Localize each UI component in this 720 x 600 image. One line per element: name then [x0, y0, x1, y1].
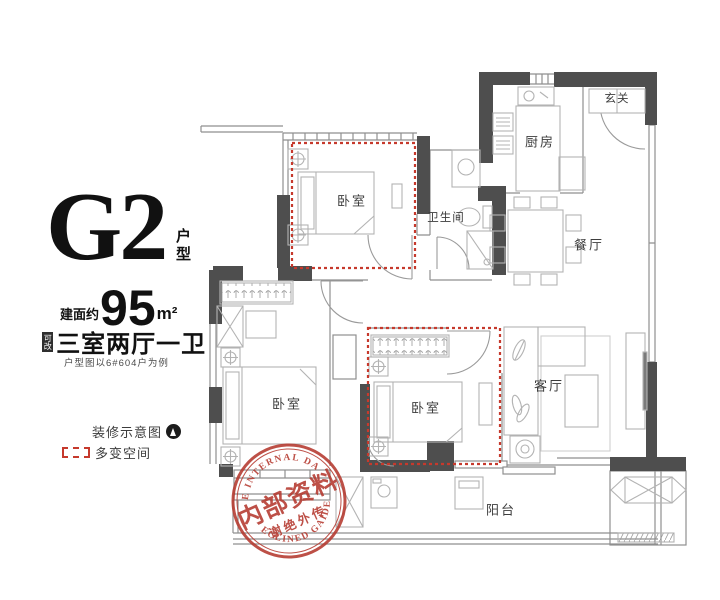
- room-label-entry: 玄关: [605, 90, 630, 106]
- internal-stamp: THE INTERNAL DATA DECLINED GAIDEN 内部资料 谢…: [219, 431, 359, 571]
- room-label-dining: 餐厅: [574, 235, 604, 254]
- room-label-bathroom: 卫生间: [427, 209, 465, 225]
- walls: [209, 72, 686, 477]
- floor-plan-page: G2 户型 建面约 95 m² 可改 三室两厅一卫 户型图以6#604户为例 装…: [0, 0, 720, 600]
- living-room-furniture: [504, 327, 647, 463]
- room-label-bedroom-2: 卧室: [272, 394, 302, 413]
- room-label-living: 客厅: [534, 376, 564, 395]
- room-label-kitchen: 厨房: [525, 132, 555, 151]
- variable-space-boxes: [292, 143, 500, 464]
- room-label-bedroom-1: 卧室: [337, 191, 367, 210]
- bedroom-3-furniture: [369, 335, 492, 456]
- room-label-balcony: 阳台: [486, 500, 516, 519]
- room-label-bedroom-3: 卧室: [411, 398, 441, 417]
